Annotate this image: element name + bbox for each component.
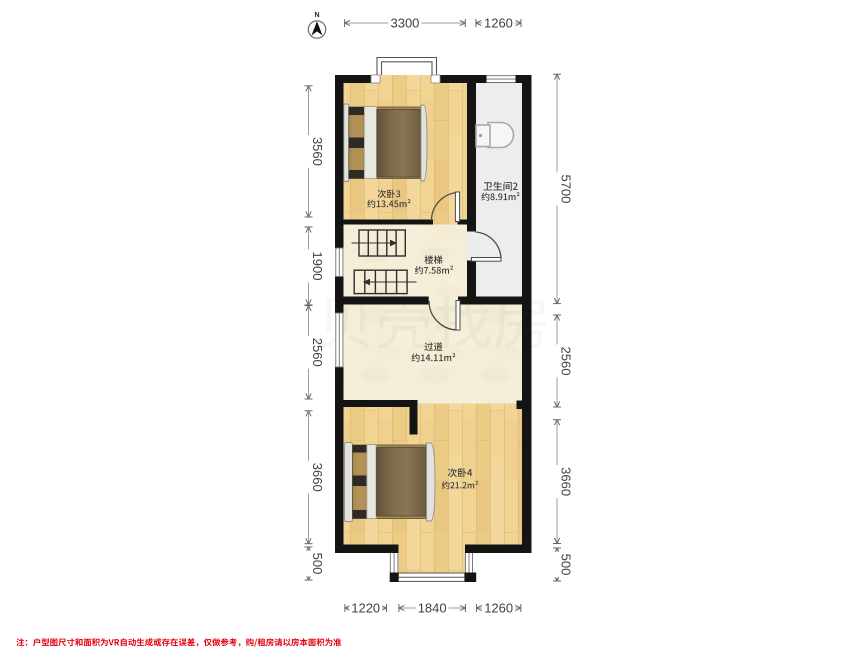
svg-text:500: 500: [559, 554, 574, 576]
svg-text:3660: 3660: [310, 463, 325, 492]
svg-text:3560: 3560: [310, 137, 325, 166]
svg-text:1840: 1840: [418, 601, 447, 616]
svg-text:1260: 1260: [484, 16, 513, 31]
svg-text:2560: 2560: [559, 347, 574, 376]
svg-text:2560: 2560: [310, 338, 325, 367]
svg-text:3660: 3660: [559, 467, 574, 496]
svg-text:5700: 5700: [559, 174, 574, 203]
svg-text:N: N: [314, 12, 319, 19]
svg-text:500: 500: [310, 553, 325, 575]
svg-text:3300: 3300: [390, 16, 419, 31]
svg-text:1260: 1260: [484, 601, 513, 616]
svg-text:1900: 1900: [310, 252, 325, 281]
svg-text:1220: 1220: [351, 601, 380, 616]
